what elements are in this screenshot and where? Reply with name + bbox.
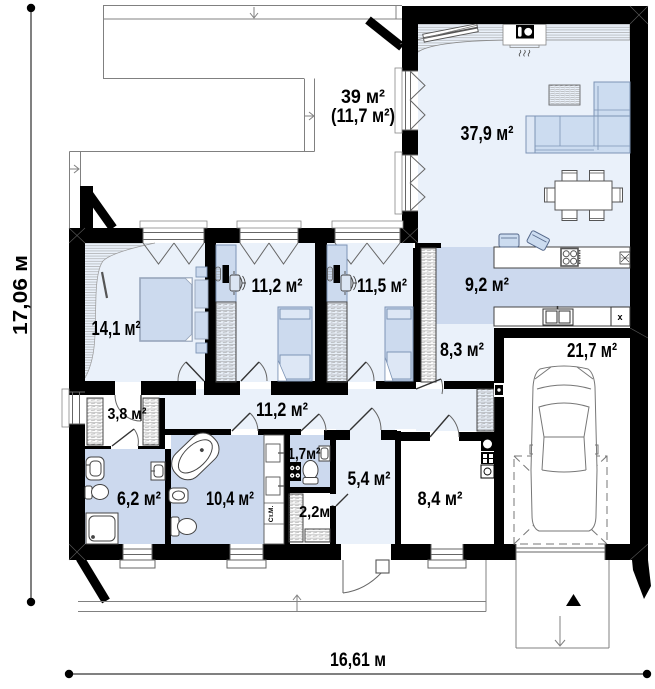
svg-text:11,5 м²: 11,5 м² xyxy=(357,276,407,297)
svg-text:5,4 м²: 5,4 м² xyxy=(348,469,391,490)
svg-text:14,1 м²: 14,1 м² xyxy=(92,318,141,340)
svg-text:10,4 м²: 10,4 м² xyxy=(206,489,254,510)
svg-text:3,8 м²: 3,8 м² xyxy=(108,406,147,423)
svg-text:2,2м²: 2,2м² xyxy=(299,504,335,521)
svg-text:1,7м²: 1,7м² xyxy=(288,446,321,463)
svg-text:9,2 м²: 9,2 м² xyxy=(465,275,509,296)
svg-text:39 м²: 39 м² xyxy=(341,87,385,108)
svg-text:11,2 м²: 11,2 м² xyxy=(256,400,308,421)
svg-text:17,06 м: 17,06 м xyxy=(10,255,32,335)
svg-text:x: x xyxy=(617,312,622,322)
svg-text:8,4 м²: 8,4 м² xyxy=(418,489,463,510)
svg-text:16,61 м: 16,61 м xyxy=(330,650,386,671)
svg-text:37,9 м²: 37,9 м² xyxy=(461,123,514,145)
svg-text:6,2 м²: 6,2 м² xyxy=(117,489,161,510)
svg-text:Ст.М.: Ст.М. xyxy=(268,506,275,523)
svg-text:21,7 м²: 21,7 м² xyxy=(567,340,617,362)
svg-text:11,2 м²: 11,2 м² xyxy=(252,276,303,297)
svg-text:(11,7 м²): (11,7 м²) xyxy=(331,106,395,127)
svg-text:8,3 м²: 8,3 м² xyxy=(440,340,484,361)
